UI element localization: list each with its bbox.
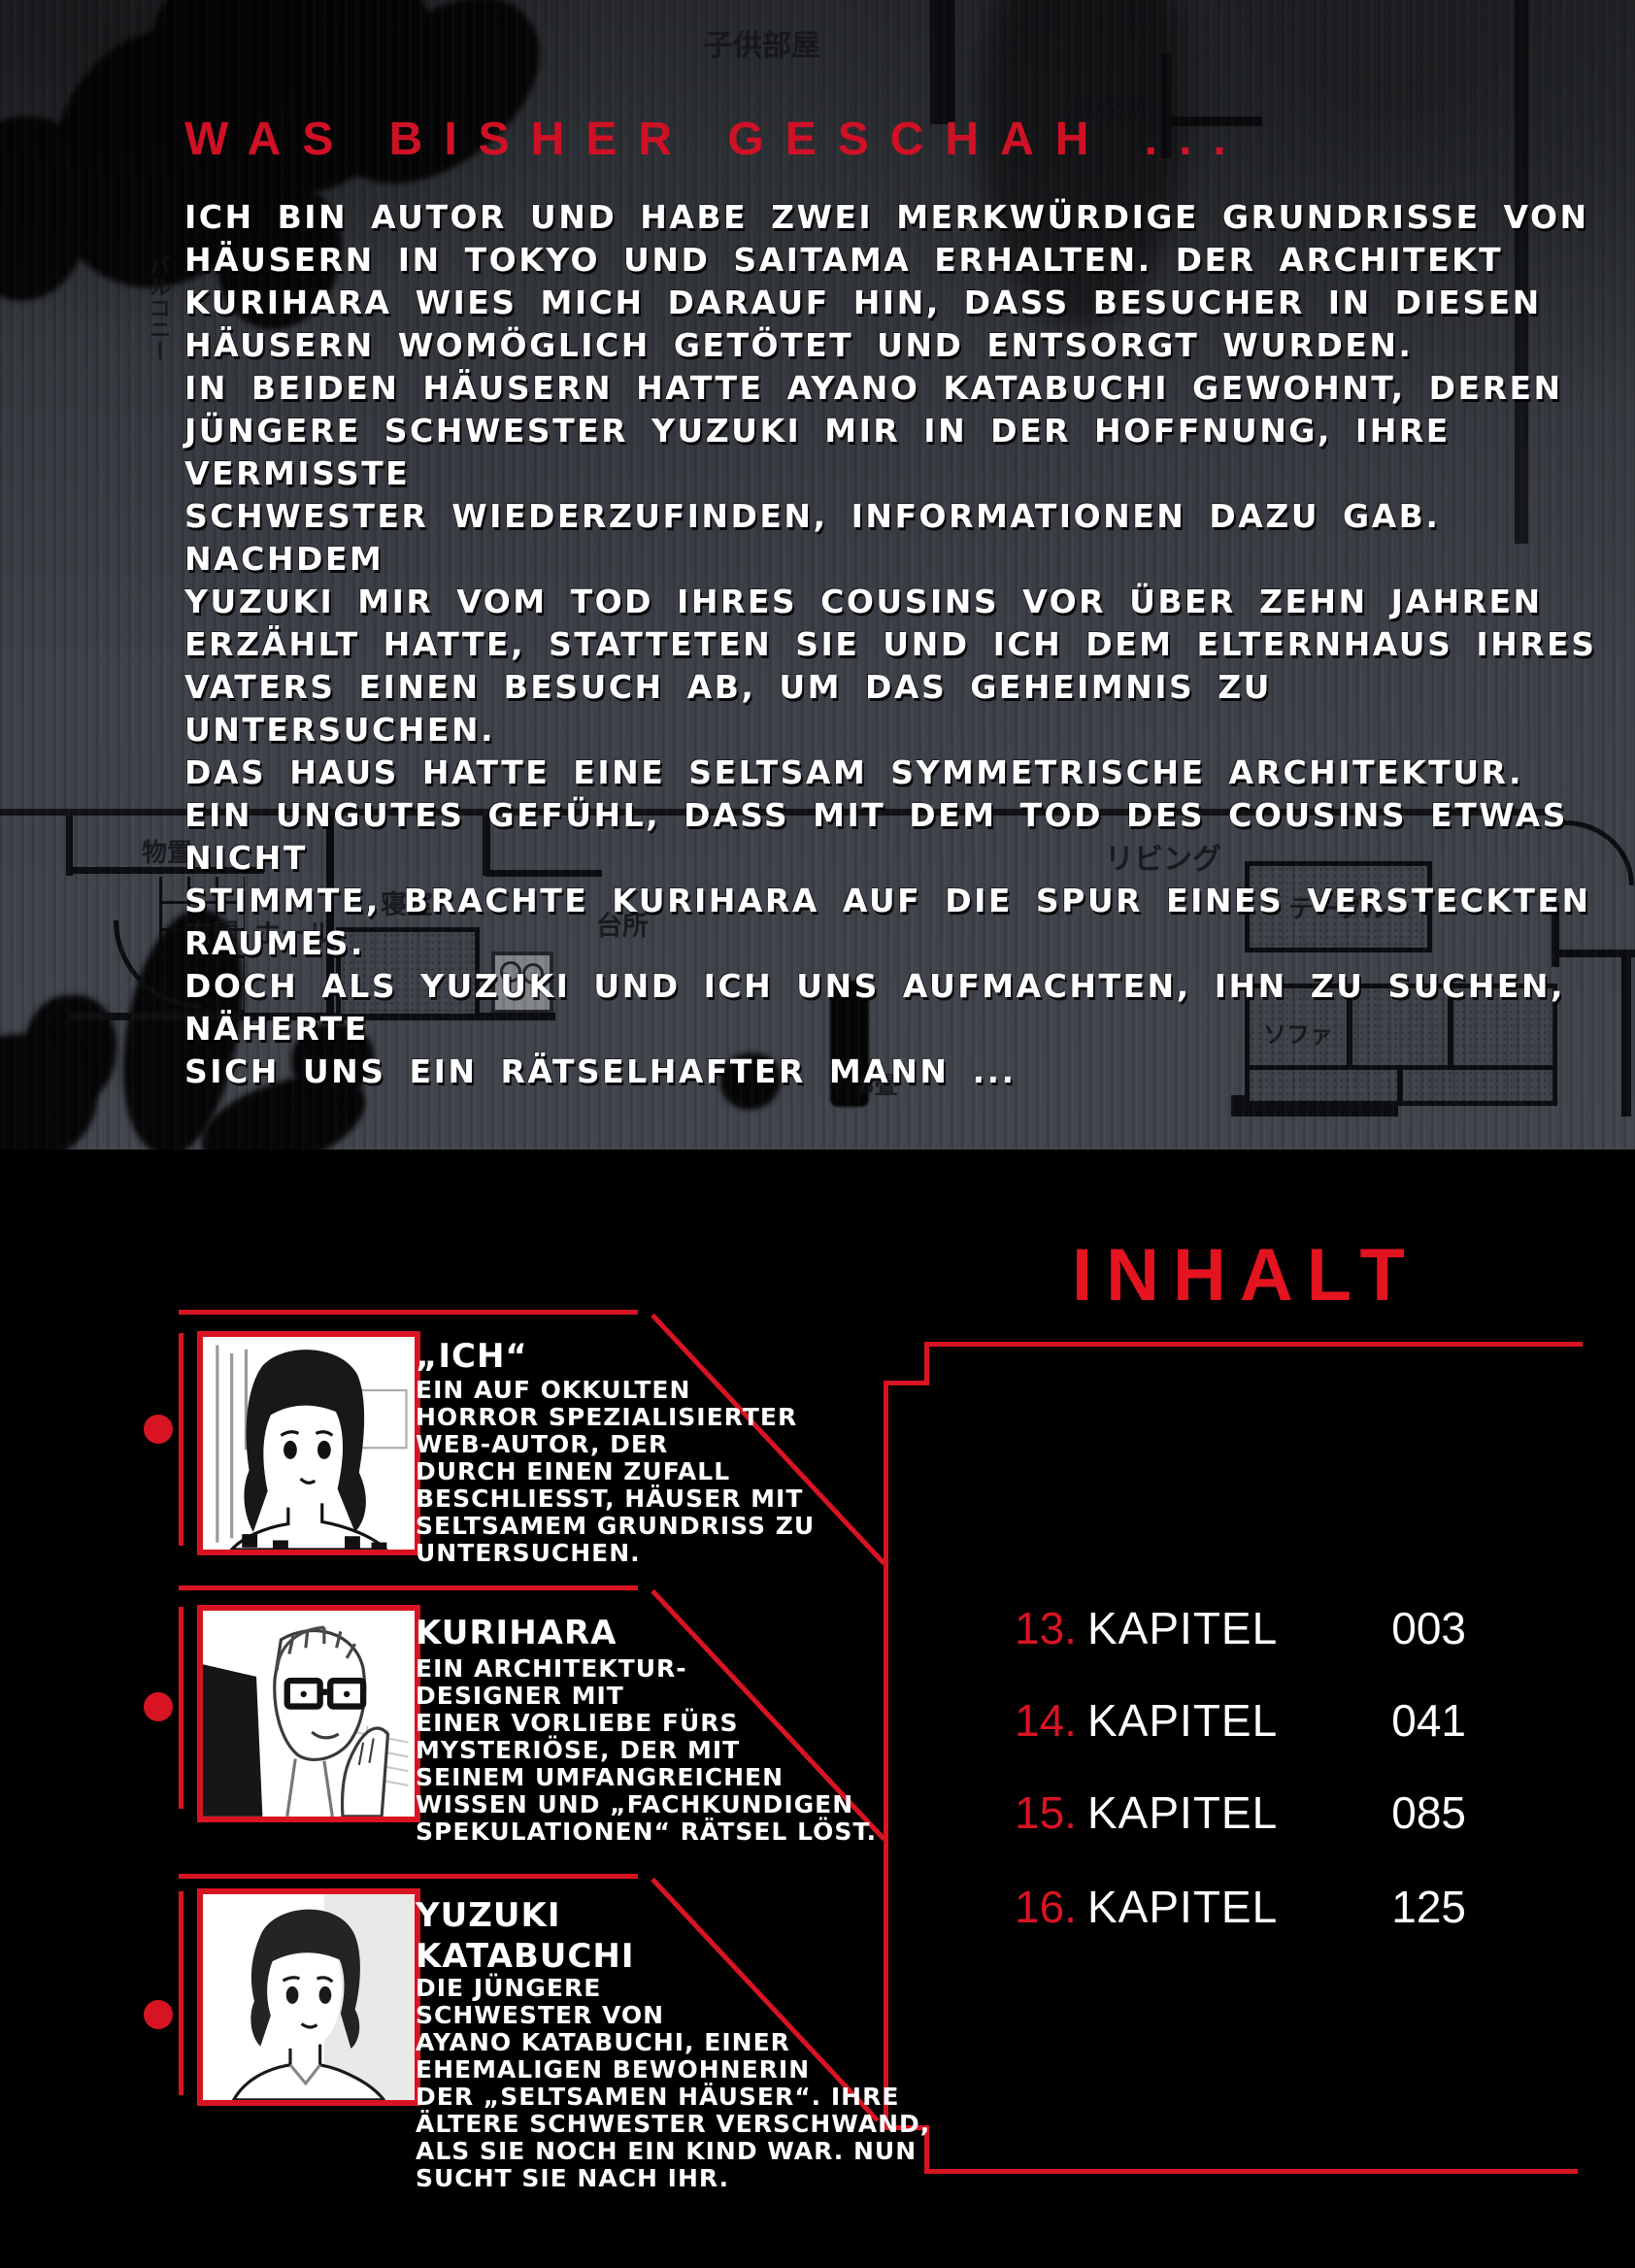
floorplan-label-kidsroom: 子供部屋 <box>704 21 820 64</box>
floorplan-background: テーブル ソファ 子供部屋 脱衣所 バルコニー 物置 玄関 ホール 寝室 台所 … <box>0 0 1635 1150</box>
character-name: YUZUKI KATABUCHI <box>416 1895 634 1977</box>
floorplan-wall <box>930 0 955 124</box>
chapter-label: KAPITEL <box>1087 1881 1278 1933</box>
portrait-ich <box>197 1331 420 1555</box>
chapter-label: KAPITEL <box>1087 1694 1278 1747</box>
contents-heading: INHALT <box>1072 1233 1418 1317</box>
portrait-ich-illustration <box>203 1337 415 1550</box>
recap-body-text: ICH BIN AUTOR UND HABE ZWEI MERKWÜRDIGE … <box>184 196 1602 1093</box>
portrait-yuzuki-illustration <box>203 1894 415 2100</box>
portrait-kurihara <box>197 1605 420 1822</box>
character-description: EIN ARCHITEKTUR- DESIGNER MIT EINER VORL… <box>416 1655 877 1846</box>
profile-side-line <box>179 1891 184 2095</box>
chapter-page: 003 <box>1391 1602 1466 1654</box>
ink-blob <box>0 117 92 301</box>
floorplan-wall <box>1621 956 1631 1117</box>
recap-title: WAS BISHER GESCHAH ... <box>184 113 1248 166</box>
chapter-row[interactable]: 14. KAPITEL 041 <box>1015 1694 1466 1743</box>
manga-recap-and-contents-page: テーブル ソファ 子供部屋 脱衣所 バルコニー 物置 玄関 ホール 寝室 台所 … <box>0 0 1635 2268</box>
character-name: „ICH“ <box>416 1336 528 1377</box>
profile-top-line <box>179 1585 638 1590</box>
profile-side-line <box>179 1333 184 1546</box>
profile-top-line <box>179 1310 638 1315</box>
chapter-number: 14. <box>1015 1694 1077 1747</box>
chapter-number: 13. <box>1015 1602 1077 1654</box>
portrait-kurihara-illustration <box>203 1611 415 1817</box>
chapter-number: 15. <box>1015 1786 1077 1839</box>
chapter-row[interactable]: 16. KAPITEL 125 <box>1015 1881 1466 1929</box>
contents-bracket-line <box>929 2169 1578 2174</box>
chapter-number: 16. <box>1015 1881 1077 1933</box>
floorplan-label-balcony: バルコニー <box>142 254 173 361</box>
profile-top-line <box>179 1874 638 1879</box>
chapter-row[interactable]: 15. KAPITEL 085 <box>1015 1786 1466 1835</box>
portrait-yuzuki <box>197 1888 420 2106</box>
character-name: KURIHARA <box>416 1613 617 1653</box>
chapter-label: KAPITEL <box>1087 1602 1278 1654</box>
chapter-label: KAPITEL <box>1087 1786 1278 1839</box>
profile-bullet-dot <box>144 1415 173 1444</box>
contents-bracket-line <box>884 1381 929 1385</box>
chapter-page: 085 <box>1391 1786 1466 1839</box>
chapter-row[interactable]: 13. KAPITEL 003 <box>1015 1602 1466 1651</box>
contents-section: INHALT 13. KAPITEL 003 14. KAPITEL 041 1… <box>0 1150 1635 2268</box>
chapter-page: 041 <box>1391 1694 1466 1747</box>
profile-side-line <box>179 1607 184 1809</box>
contents-bracket-line <box>924 1342 929 1385</box>
contents-bracket-line <box>929 1342 1583 1347</box>
chapter-page: 125 <box>1391 1881 1466 1933</box>
character-description: DIE JÜNGERE SCHWESTER VON AYANO KATABUCH… <box>416 1975 930 2192</box>
profile-bullet-dot <box>144 2000 173 2029</box>
character-description: EIN AUF OKKULTEN HORROR SPEZIALISIERTER … <box>416 1377 815 1567</box>
profile-bullet-dot <box>144 1692 173 1721</box>
